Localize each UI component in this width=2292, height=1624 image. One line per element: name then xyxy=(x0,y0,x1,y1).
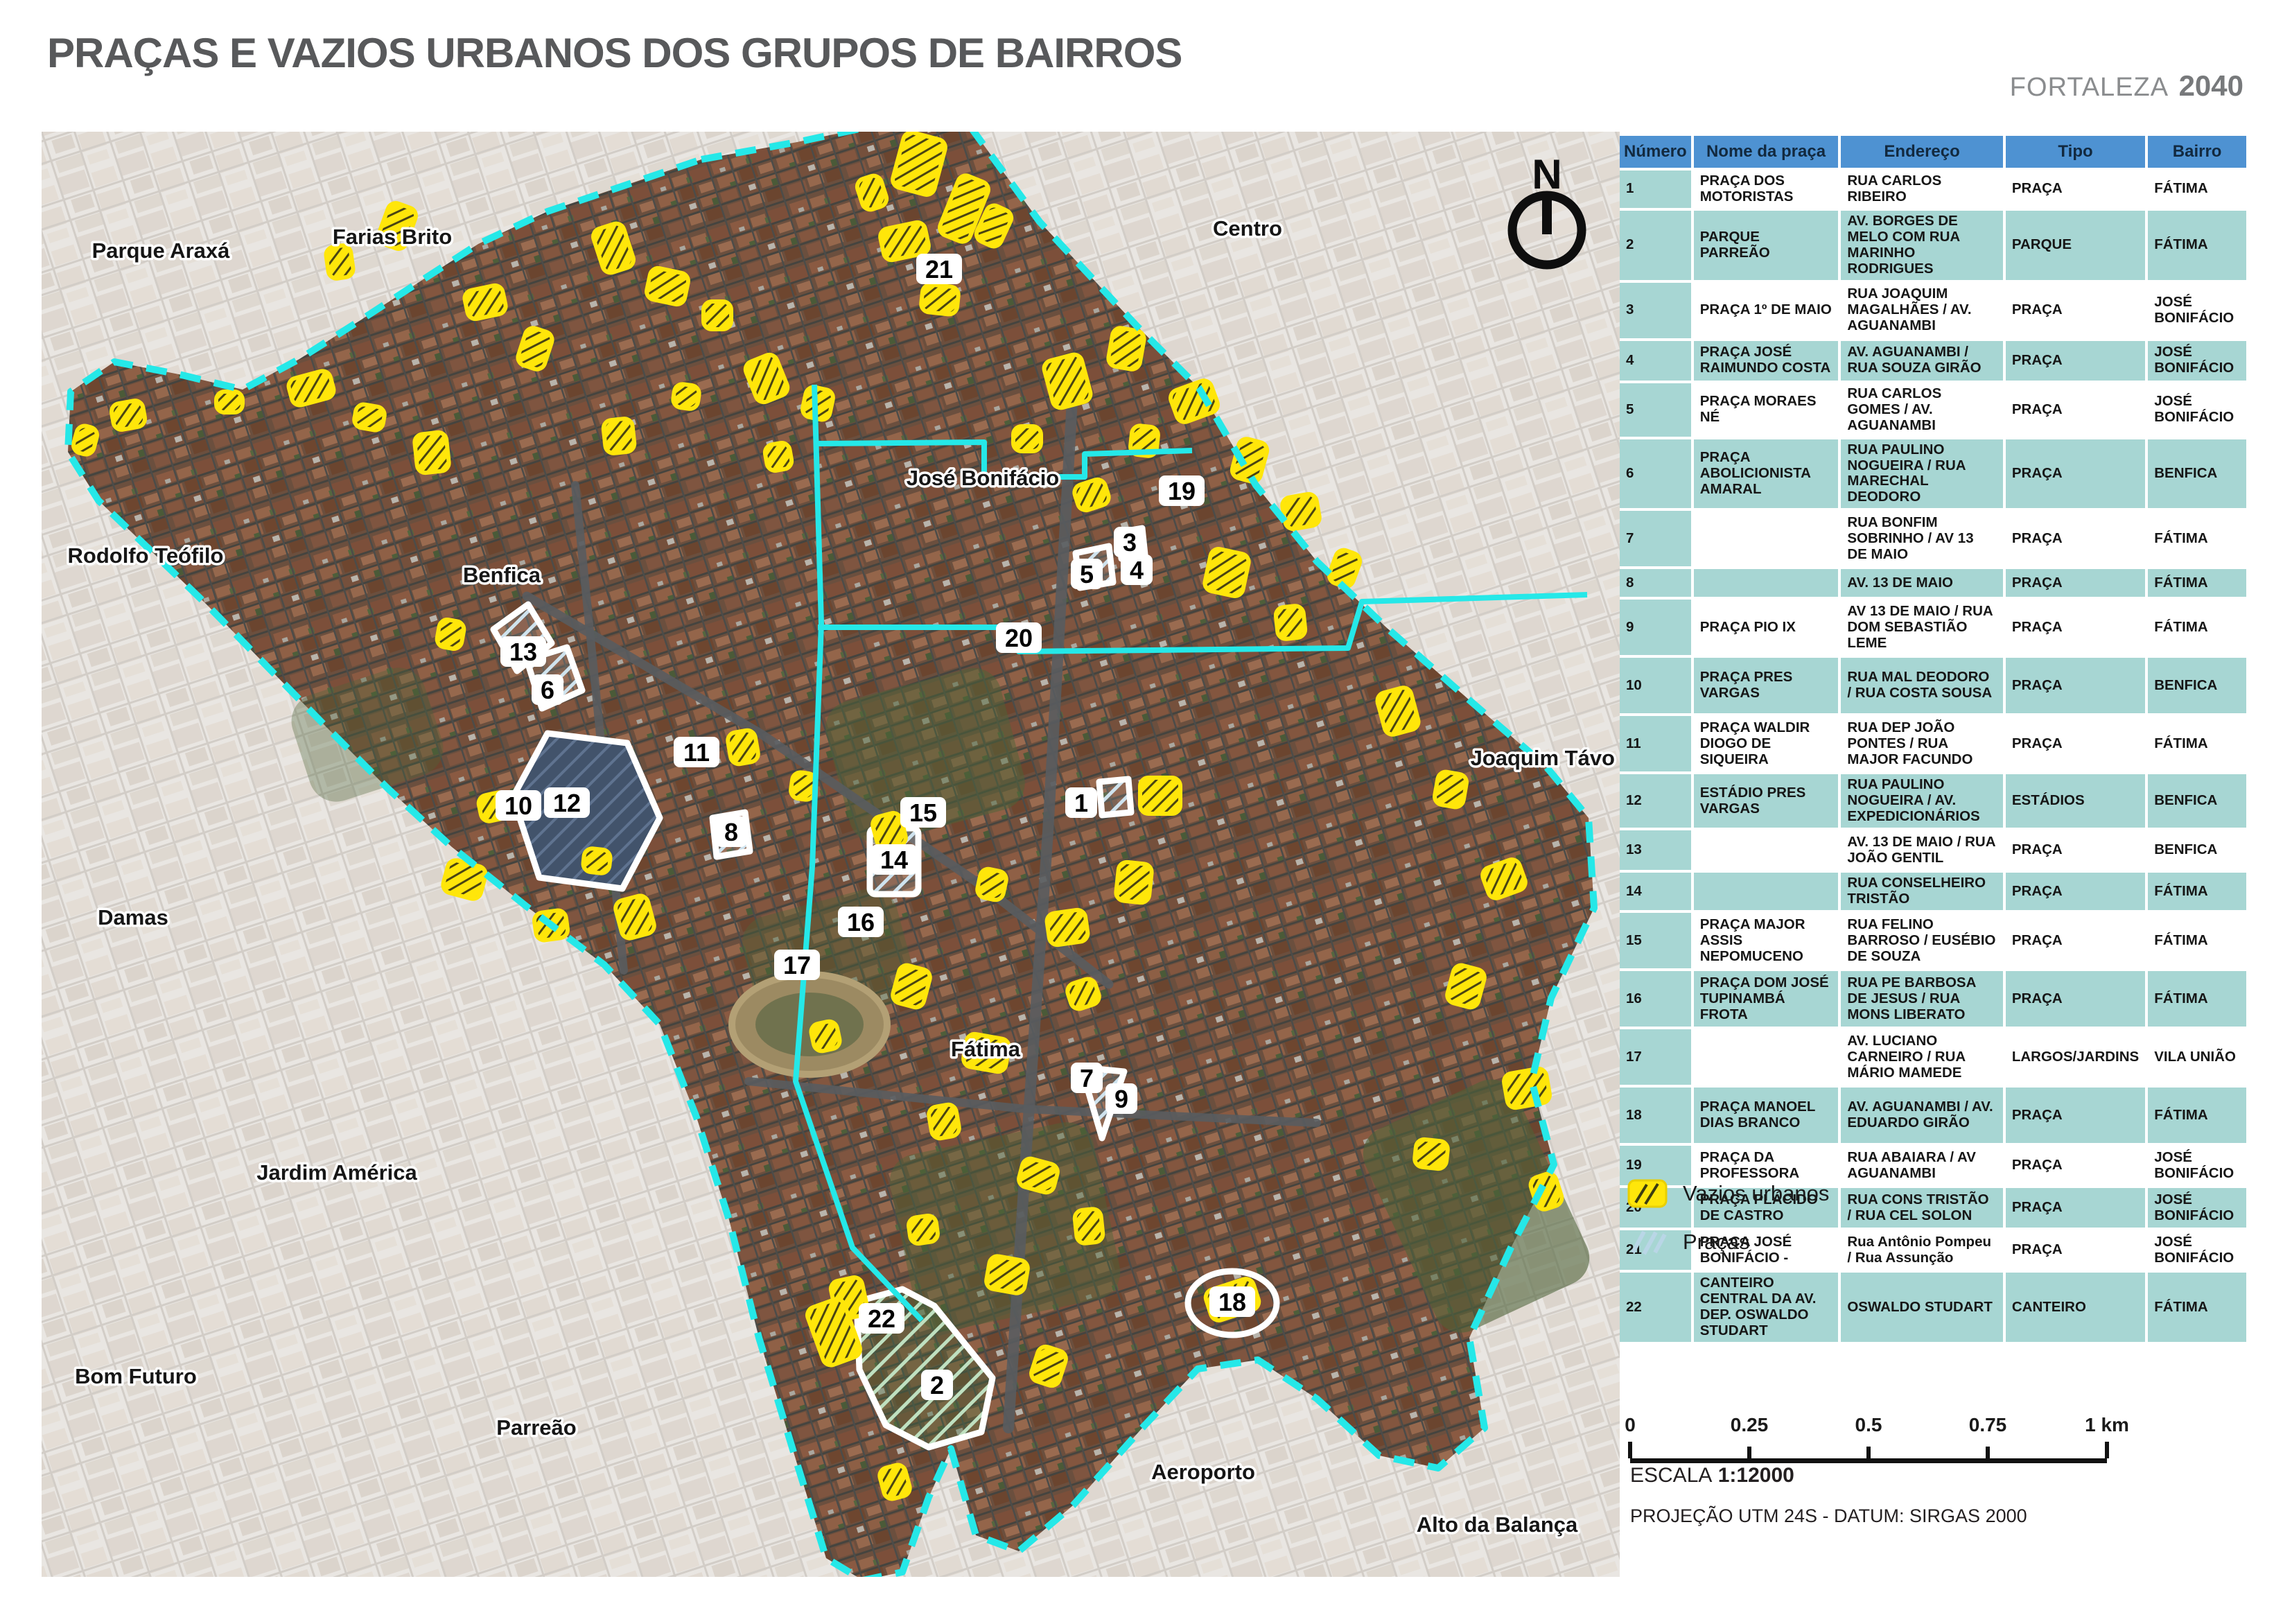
table-cell-nome: PRAÇA WALDIR DIOGO DE SIQUEIRA xyxy=(1694,716,1839,771)
vazio-urbano-shape xyxy=(441,859,488,901)
table-cell-bairro: BENFICA xyxy=(2148,774,2246,828)
legend-item-pracas: Praças xyxy=(1627,1227,1829,1257)
map-badge-20: 20 xyxy=(996,622,1042,653)
table-cell-end: AV. BORGES DE MELO COM RUA MARINHO RODRI… xyxy=(1841,211,2003,280)
svg-text:19: 19 xyxy=(1168,477,1196,505)
map-badge-13: 13 xyxy=(500,636,546,667)
table-row: 10PRAÇA PRES VARGASRUA MAL DEODORO / RUA… xyxy=(1620,658,2246,713)
table-cell-bairro: FÁTIMA xyxy=(2148,913,2246,968)
table-cell-num: 8 xyxy=(1620,569,1691,597)
place-label: Parque Araxá xyxy=(92,238,230,263)
vazio-urbano-shape xyxy=(672,383,700,410)
vazio-urbano-shape xyxy=(1503,1067,1551,1109)
table-row: 11PRAÇA WALDIR DIOGO DE SIQUEIRARUA DEP … xyxy=(1620,716,2246,771)
table-cell-bairro: FÁTIMA xyxy=(2148,716,2246,771)
table-cell-nome: PRAÇA PIO IX xyxy=(1694,600,1839,655)
map-badge-9: 9 xyxy=(1105,1083,1137,1114)
table-cell-tipo: PRAÇA xyxy=(2006,1188,2145,1228)
table-cell-num: 22 xyxy=(1620,1273,1691,1342)
table-row: 4PRAÇA JOSÉ RAIMUNDO COSTAAV. AGUANAMBI … xyxy=(1620,341,2246,381)
racetrack-infield xyxy=(755,993,864,1056)
place-label: Benfica xyxy=(463,563,541,587)
table-cell-end: RUA CARLOS GOMES / AV. AGUANAMBI xyxy=(1841,383,2003,437)
praca-table: NúmeroNome da praçaEndereçoTipoBairro 1P… xyxy=(1617,133,2249,1345)
table-row: 2PARQUE PARREÃOAV. BORGES DE MELO COM RU… xyxy=(1620,211,2246,280)
vazio-urbano-shape xyxy=(603,418,636,454)
table-cell-end: AV. AGUANAMBI / RUA SOUZA GIRÃO xyxy=(1841,341,2003,381)
table-row: 6PRAÇA ABOLICIONISTA AMARALRUA PAULINO N… xyxy=(1620,439,2246,509)
map-badge-4: 4 xyxy=(1121,555,1153,585)
table-cell-end: Rua Antônio Pompeu / Rua Assunção xyxy=(1841,1230,2003,1270)
place-label: Alto da Balança xyxy=(1417,1512,1578,1537)
table-row: 8AV. 13 DE MAIOPRAÇAFÁTIMA xyxy=(1620,569,2246,597)
table-cell-num: 12 xyxy=(1620,774,1691,828)
svg-text:8: 8 xyxy=(724,818,738,846)
table-cell-num: 9 xyxy=(1620,600,1691,655)
table-cell-bairro: FÁTIMA xyxy=(2148,971,2246,1027)
table-cell-nome: PRAÇA ABOLICIONISTA AMARAL xyxy=(1694,439,1839,509)
scale-tick xyxy=(1628,1442,1632,1458)
column-header: Nome da praça xyxy=(1694,136,1839,168)
table-cell-bairro: JOSÉ BONIFÁCIO xyxy=(2148,341,2246,381)
table-cell-bairro: BENFICA xyxy=(2148,830,2246,870)
racetrack xyxy=(732,975,887,1074)
table-cell-nome: PRAÇA 1º DE MAIO xyxy=(1694,283,1839,338)
table-cell-tipo: PRAÇA xyxy=(2006,658,2145,713)
vazio-urbano-shape xyxy=(1433,771,1468,809)
table-row: 16PRAÇA DOM JOSÉ TUPINAMBÁ FROTARUA PE B… xyxy=(1620,971,2246,1027)
legend-label-vazios: Vazios urbanos xyxy=(1683,1181,1829,1206)
legend-item-vazios: Vazios urbanos xyxy=(1627,1178,1829,1209)
place-label: Parreão xyxy=(496,1415,576,1440)
svg-text:13: 13 xyxy=(509,638,537,666)
table-cell-num: 16 xyxy=(1620,971,1691,1027)
table-cell-num: 10 xyxy=(1620,658,1691,713)
svg-text:14: 14 xyxy=(880,846,908,874)
table-cell-tipo: PRAÇA xyxy=(2006,1146,2145,1185)
vazio-urbano-shape xyxy=(582,848,611,874)
scale-tick xyxy=(1866,1447,1871,1458)
table-cell-num: 17 xyxy=(1620,1029,1691,1085)
table-cell-end: RUA PE BARBOSA DE JESUS / RUA MONS LIBER… xyxy=(1841,971,2003,1027)
table-cell-nome xyxy=(1694,1029,1839,1085)
vazio-urbano-shape xyxy=(1046,909,1089,945)
place-label: Aeroporto xyxy=(1151,1460,1255,1484)
svg-text:3: 3 xyxy=(1123,528,1137,557)
table-cell-num: 4 xyxy=(1620,341,1691,381)
table-cell-tipo: PRAÇA xyxy=(2006,1230,2145,1270)
table-cell-bairro: FÁTIMA xyxy=(2148,569,2246,597)
table-cell-tipo: PRAÇA xyxy=(2006,341,2145,381)
svg-text:7: 7 xyxy=(1080,1064,1094,1092)
table-cell-tipo: PRAÇA xyxy=(2006,283,2145,338)
table-cell-num: 14 xyxy=(1620,873,1691,910)
vazio-urbano-shape xyxy=(1281,493,1320,530)
scale-tick xyxy=(2105,1442,2109,1458)
svg-text:18: 18 xyxy=(1218,1288,1246,1316)
table-cell-end: RUA FELINO BARROSO / EUSÉBIO DE SOUZA xyxy=(1841,913,2003,968)
table-row: 3PRAÇA 1º DE MAIORUA JOAQUIM MAGALHÃES /… xyxy=(1620,283,2246,338)
pracas-swatch-icon xyxy=(1627,1228,1668,1257)
table-row: 14RUA CONSELHEIRO TRISTÃOPRAÇAFÁTIMA xyxy=(1620,873,2246,910)
map-badge-11: 11 xyxy=(674,737,719,767)
svg-text:17: 17 xyxy=(783,951,811,979)
table-cell-end: RUA JOAQUIM MAGALHÃES / AV. AGUANAMBI xyxy=(1841,283,2003,338)
projection-text: PROJEÇÃO UTM 24S - DATUM: SIRGAS 2000 xyxy=(1630,1505,2027,1527)
praca-table-panel: NúmeroNome da praçaEndereçoTipoBairro 1P… xyxy=(1620,136,2252,1342)
vazio-urbano-shape xyxy=(110,399,146,430)
map-badge-1: 1 xyxy=(1065,787,1097,818)
table-cell-num: 13 xyxy=(1620,830,1691,870)
brand-year: 2040 xyxy=(2179,69,2243,102)
table-cell-bairro: JOSÉ BONIFÁCIO xyxy=(2148,1146,2246,1185)
vazio-urbano-shape xyxy=(1013,426,1041,451)
table-cell-end: RUA MAL DEODORO / RUA COSTA SOUSA xyxy=(1841,658,2003,713)
table-cell-bairro: BENFICA xyxy=(2148,658,2246,713)
table-cell-nome: PRAÇA JOSÉ RAIMUNDO COSTA xyxy=(1694,341,1839,381)
vazio-urbano-shape xyxy=(436,618,465,650)
vazio-urbano-shape xyxy=(908,1214,939,1244)
table-cell-tipo: PRAÇA xyxy=(2006,383,2145,437)
svg-text:N: N xyxy=(1532,151,1561,198)
table-row: 13AV. 13 DE MAIO / RUA JOÃO GENTILPRAÇAB… xyxy=(1620,830,2246,870)
table-cell-bairro: JOSÉ BONIFÁCIO xyxy=(2148,1230,2246,1270)
map-badge-21: 21 xyxy=(916,254,962,284)
table-cell-nome: PRAÇA MAJOR ASSIS NEPOMUCENO xyxy=(1694,913,1839,968)
table-cell-end: RUA PAULINO NOGUEIRA / AV. EXPEDICIONÁRI… xyxy=(1841,774,2003,828)
map-badge-10: 10 xyxy=(496,790,541,821)
table-row: 9PRAÇA PIO IXAV 13 DE MAIO / RUA DOM SEB… xyxy=(1620,600,2246,655)
table-cell-nome: ESTÁDIO PRES VARGAS xyxy=(1694,774,1839,828)
scale-label: 0.25 xyxy=(1731,1414,1769,1436)
vazio-urbano-shape xyxy=(920,283,959,315)
vazio-urbano-shape xyxy=(1115,862,1153,904)
table-cell-nome xyxy=(1694,511,1839,566)
table-cell-bairro: FÁTIMA xyxy=(2148,600,2246,655)
column-header: Endereço xyxy=(1841,136,2003,168)
vazio-urbano-shape xyxy=(1414,1139,1449,1170)
map-badge-5: 5 xyxy=(1071,559,1103,589)
scale-label: 1 km xyxy=(2085,1414,2129,1436)
table-cell-end: AV. LUCIANO CARNEIRO / RUA MÁRIO MAMEDE xyxy=(1841,1029,2003,1085)
vazio-urbano-shape xyxy=(927,1103,960,1140)
table-cell-bairro: BENFICA xyxy=(2148,439,2246,509)
table-cell-end: RUA CONS TRISTÃO / RUA CEL SOLON xyxy=(1841,1188,2003,1228)
scale-bar-line xyxy=(1630,1442,2107,1463)
table-cell-end: OSWALDO STUDART xyxy=(1841,1273,2003,1342)
vazio-urbano-shape xyxy=(614,894,656,941)
map-badge-2: 2 xyxy=(921,1370,953,1400)
map-badge-7: 7 xyxy=(1071,1063,1103,1093)
table-cell-bairro: FÁTIMA xyxy=(2148,873,2246,910)
table-cell-nome: PRAÇA PRES VARGAS xyxy=(1694,658,1839,713)
map-badge-22: 22 xyxy=(859,1303,904,1334)
svg-text:11: 11 xyxy=(683,738,710,767)
table-row: 5PRAÇA MORAES NÉRUA CARLOS GOMES / AV. A… xyxy=(1620,383,2246,437)
table-row: 22CANTEIRO CENTRAL DA AV. DEP. OSWALDO S… xyxy=(1620,1273,2246,1342)
vazio-urbano-shape xyxy=(1140,778,1180,814)
table-row: 18PRAÇA MANOEL DIAS BRANCOAV. AGUANAMBI … xyxy=(1620,1088,2246,1143)
svg-text:10: 10 xyxy=(505,792,532,820)
map-badge-12: 12 xyxy=(544,787,590,818)
scale-tick xyxy=(1986,1447,1990,1458)
table-cell-num: 1 xyxy=(1620,171,1691,208)
table-cell-tipo: PRAÇA xyxy=(2006,439,2145,509)
place-label: Bom Futuro xyxy=(75,1364,197,1388)
place-label: Jardim América xyxy=(256,1160,417,1185)
table-row: 1PRAÇA DOS MOTORISTASRUA CARLOS RIBEIROP… xyxy=(1620,171,2246,208)
map-badge-16: 16 xyxy=(838,907,884,937)
svg-text:12: 12 xyxy=(553,789,581,817)
svg-text:20: 20 xyxy=(1005,624,1033,652)
table-cell-bairro: FÁTIMA xyxy=(2148,1273,2246,1342)
map-badge-14: 14 xyxy=(871,844,917,875)
fortaleza-2040-logo: FORTALEZA 2040 xyxy=(2010,69,2243,103)
table-cell-tipo: PRAÇA xyxy=(2006,873,2145,910)
table-cell-nome xyxy=(1694,873,1839,910)
map-badge-6: 6 xyxy=(532,674,563,705)
svg-text:9: 9 xyxy=(1114,1085,1128,1113)
table-cell-bairro: VILA UNIÃO xyxy=(2148,1029,2246,1085)
vazio-urbano-shape xyxy=(810,1020,841,1052)
table-cell-bairro: JOSÉ BONIFÁCIO xyxy=(2148,383,2246,437)
map-badge-3: 3 xyxy=(1114,527,1146,557)
table-cell-num: 18 xyxy=(1620,1088,1691,1143)
map-badge-18: 18 xyxy=(1209,1286,1255,1317)
column-header: Bairro xyxy=(2148,136,2246,168)
table-cell-tipo: PRAÇA xyxy=(2006,830,2145,870)
map-badge-19: 19 xyxy=(1159,475,1205,506)
vazio-urbano-shape xyxy=(878,1463,912,1501)
brand-name: FORTALEZA xyxy=(2010,73,2169,102)
vazio-urbano-shape xyxy=(1275,605,1306,640)
place-label: José Bonifácio xyxy=(907,466,1060,490)
scale-label: 0 xyxy=(1625,1414,1636,1436)
table-cell-num: 5 xyxy=(1620,383,1691,437)
legend: Vazios urbanos Praças xyxy=(1627,1178,1829,1275)
table-cell-end: RUA BONFIM SOBRINHO / AV 13 DE MAIO xyxy=(1841,511,2003,566)
vazio-urbano-shape xyxy=(985,1255,1029,1295)
table-cell-bairro: FÁTIMA xyxy=(2148,511,2246,566)
praca-outline xyxy=(1099,779,1131,815)
table-cell-bairro: FÁTIMA xyxy=(2148,1088,2246,1143)
vazio-urbano-shape xyxy=(891,963,932,1009)
vazio-urbano-shape xyxy=(414,432,450,474)
vazio-urbano-shape xyxy=(1017,1157,1059,1194)
column-header: Número xyxy=(1620,136,1691,168)
table-cell-end: RUA DEP JOÃO PONTES / RUA MAJOR FACUNDO xyxy=(1841,716,2003,771)
vazio-urbano-shape xyxy=(463,284,507,321)
table-row: 12ESTÁDIO PRES VARGASRUA PAULINO NOGUEIR… xyxy=(1620,774,2246,828)
table-cell-num: 6 xyxy=(1620,439,1691,509)
svg-text:6: 6 xyxy=(541,676,554,704)
table-cell-num: 11 xyxy=(1620,716,1691,771)
vazio-urbano-shape xyxy=(726,729,759,765)
table-cell-end: RUA CARLOS RIBEIRO xyxy=(1841,171,2003,208)
place-label: Farias Brito xyxy=(333,225,452,249)
legend-label-pracas: Praças xyxy=(1683,1230,1749,1255)
map-badge-17: 17 xyxy=(774,950,820,980)
table-cell-end: RUA PAULINO NOGUEIRA / RUA MARECHAL DEOD… xyxy=(1841,439,2003,509)
scale-tick xyxy=(1747,1447,1751,1458)
table-cell-end: AV. 13 DE MAIO xyxy=(1841,569,2003,597)
table-cell-tipo: PRAÇA xyxy=(2006,511,2145,566)
table-cell-nome: PRAÇA DOM JOSÉ TUPINAMBÁ FROTA xyxy=(1694,971,1839,1027)
vazio-urbano-shape xyxy=(764,442,793,472)
svg-text:5: 5 xyxy=(1080,560,1094,588)
svg-text:4: 4 xyxy=(1130,556,1144,584)
scale-bar: 00.250.50.751 km xyxy=(1630,1414,2107,1463)
table-cell-tipo: PRAÇA xyxy=(2006,971,2145,1027)
table-cell-tipo: PARQUE xyxy=(2006,211,2145,280)
svg-text:1: 1 xyxy=(1074,789,1088,817)
vazio-urbano-shape xyxy=(645,267,690,306)
vazio-urbano-shape xyxy=(1074,1208,1104,1244)
table-cell-tipo: PRAÇA xyxy=(2006,716,2145,771)
svg-text:2: 2 xyxy=(930,1371,944,1399)
scale-label: 0.5 xyxy=(1855,1414,1882,1436)
table-cell-tipo: PRAÇA xyxy=(2006,1088,2145,1143)
vazio-urbano-shape xyxy=(216,392,243,412)
table-row: 17AV. LUCIANO CARNEIRO / RUA MÁRIO MAMED… xyxy=(1620,1029,2246,1085)
table-cell-nome xyxy=(1694,569,1839,597)
table-cell-nome: PRAÇA MANOEL DIAS BRANCO xyxy=(1694,1088,1839,1143)
table-cell-tipo: ESTÁDIOS xyxy=(2006,774,2145,828)
table-cell-nome: PARQUE PARREÃO xyxy=(1694,211,1839,280)
vazio-urbano-shape xyxy=(976,868,1008,902)
table-row: 7RUA BONFIM SOBRINHO / AV 13 DE MAIOPRAÇ… xyxy=(1620,511,2246,566)
vazio-urbano-shape xyxy=(325,245,354,280)
table-cell-tipo: PRAÇA xyxy=(2006,171,2145,208)
place-label: Centro xyxy=(1213,216,1282,241)
table-cell-nome xyxy=(1694,830,1839,870)
table-cell-num: 3 xyxy=(1620,283,1691,338)
table-cell-nome: PRAÇA DOS MOTORISTAS xyxy=(1694,171,1839,208)
escala-text: ESCALA 1:12000 xyxy=(1630,1464,1794,1487)
vazio-urbano-shape xyxy=(1107,326,1145,370)
place-label: Damas xyxy=(98,905,168,929)
svg-text:22: 22 xyxy=(868,1304,895,1333)
table-row: 15PRAÇA MAJOR ASSIS NEPOMUCENORUA FELINO… xyxy=(1620,913,2246,968)
svg-text:16: 16 xyxy=(847,908,875,936)
table-cell-end: AV. 13 DE MAIO / RUA JOÃO GENTIL xyxy=(1841,830,2003,870)
vazios-urbanos-swatch-icon xyxy=(1627,1179,1668,1208)
vazio-urbano-shape xyxy=(703,302,731,329)
table-header-row: NúmeroNome da praçaEndereçoTipoBairro xyxy=(1620,136,2246,168)
table-cell-num: 7 xyxy=(1620,511,1691,566)
table-cell-nome: CANTEIRO CENTRAL DA AV. DEP. OSWALDO STU… xyxy=(1694,1273,1839,1342)
table-cell-end: RUA ABAIARA / AV AGUANAMBI xyxy=(1841,1146,2003,1185)
svg-text:15: 15 xyxy=(909,798,937,827)
place-label: Rodolfo Teófilo xyxy=(68,543,224,568)
table-cell-bairro: FÁTIMA xyxy=(2148,211,2246,280)
svg-text:21: 21 xyxy=(925,255,953,283)
column-header: Tipo xyxy=(2006,136,2145,168)
map-badge-15: 15 xyxy=(900,797,946,828)
table-cell-tipo: PRAÇA xyxy=(2006,569,2145,597)
vazio-urbano-shape xyxy=(353,403,385,432)
table-cell-tipo: CANTEIRO xyxy=(2006,1273,2145,1342)
table-cell-num: 15 xyxy=(1620,913,1691,968)
table-cell-num: 2 xyxy=(1620,211,1691,280)
place-label: Fátima xyxy=(951,1037,1021,1061)
table-cell-tipo: PRAÇA xyxy=(2006,913,2145,968)
table-cell-end: AV. AGUANAMBI / AV. EDUARDO GIRÃO xyxy=(1841,1088,2003,1143)
table-cell-tipo: LARGOS/JARDINS xyxy=(2006,1029,2145,1085)
place-label: Joaquim Távo xyxy=(1471,746,1615,770)
map-badge-8: 8 xyxy=(715,817,747,847)
vazio-urbano-shape xyxy=(1446,963,1487,1009)
table-cell-bairro: FÁTIMA xyxy=(2148,171,2246,208)
table-cell-bairro: JOSÉ BONIFÁCIO xyxy=(2148,1188,2246,1228)
table-cell-end: AV 13 DE MAIO / RUA DOM SEBASTIÃO LEME xyxy=(1841,600,2003,655)
table-cell-bairro: JOSÉ BONIFÁCIO xyxy=(2148,283,2246,338)
scale-label: 0.75 xyxy=(1969,1414,2007,1436)
page-title: PRAÇAS E VAZIOS URBANOS DOS GRUPOS DE BA… xyxy=(47,29,1182,77)
table-cell-nome: PRAÇA MORAES NÉ xyxy=(1694,383,1839,437)
table-cell-tipo: PRAÇA xyxy=(2006,600,2145,655)
table-cell-end: RUA CONSELHEIRO TRISTÃO xyxy=(1841,873,2003,910)
vazio-urbano-shape xyxy=(1203,548,1250,597)
